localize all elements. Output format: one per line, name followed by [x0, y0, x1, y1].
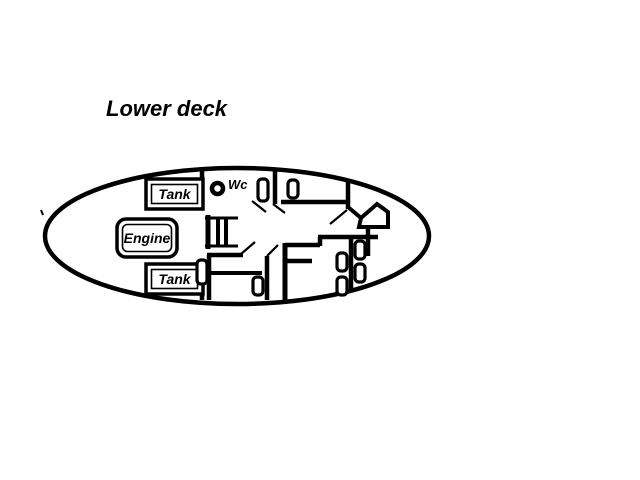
- tank-bottom: Tank: [146, 264, 203, 294]
- lower-deck-diagram: Lower deck: [0, 0, 640, 480]
- toilet-icon: [212, 183, 223, 194]
- door-pill-wc: [258, 179, 268, 201]
- tank-top-label: Tank: [158, 186, 191, 202]
- deck-plan-canvas: Lower deck: [0, 0, 640, 480]
- pillow-aft-stbd-1: [355, 241, 365, 259]
- pillow-aft-stbd-2: [355, 264, 365, 282]
- pillow-fwd-cabin: [288, 180, 298, 198]
- tank-top: Tank: [146, 179, 203, 209]
- wc-label: Wc: [228, 177, 248, 192]
- pillow-aft-port-2: [337, 277, 347, 295]
- engine-label: Engine: [124, 230, 171, 246]
- page-title: Lower deck: [106, 96, 229, 121]
- tank-bottom-label: Tank: [158, 271, 191, 287]
- pillow-mid-cabin: [253, 277, 263, 295]
- door-pill-mid-cabin: [197, 260, 207, 284]
- bow-speck: [41, 210, 43, 215]
- pillow-aft-port-1: [337, 253, 347, 271]
- engine-box: Engine: [117, 219, 177, 257]
